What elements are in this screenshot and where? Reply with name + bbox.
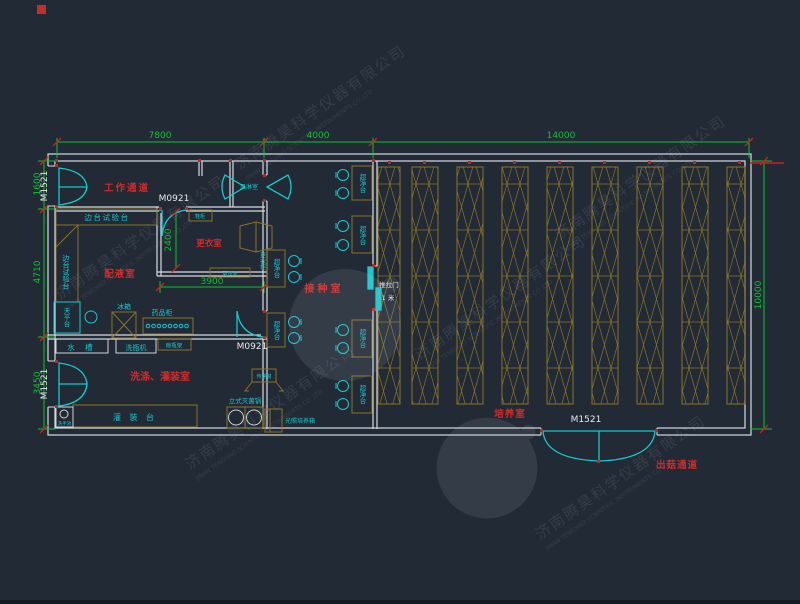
- label-wardrobe: 更衣柜: [259, 252, 266, 271]
- floorplan-drawing: 7800 4000 14000 1600 4710 3450 10000 240…: [0, 0, 800, 600]
- dim-10000: 10000: [754, 280, 764, 309]
- label-side-bench-top: 边台试验台: [85, 212, 130, 222]
- room-label-washing-filling: 洗涤、灌装室: [130, 370, 190, 383]
- door-label-m1521-bottomleft: M1521: [40, 369, 50, 400]
- door-label-m1521-topleft: M1521: [40, 171, 50, 202]
- room-label-changing: 更衣室: [196, 238, 222, 249]
- label-clean-bench: 超净台: [272, 319, 280, 341]
- label-bottle-rack: 晾瓶架: [166, 342, 183, 350]
- room-label-air-shower: 风淋室: [240, 183, 258, 191]
- label-medicine-cabinet: 药品柜: [152, 308, 173, 317]
- door-label-m1521-harvest: M1521: [571, 415, 602, 425]
- dim-14000: 14000: [547, 131, 576, 141]
- label-clean-bench: 超净台: [358, 224, 366, 246]
- label-changing-bench: 更衣凳: [222, 271, 237, 278]
- label-shoe-cabinet: 鞋柜: [195, 213, 205, 220]
- room-label-work-corridor: 工作通道: [104, 182, 150, 194]
- dim-4710: 4710: [33, 260, 43, 283]
- label-sterilizer: 立式灭菌锅: [229, 396, 262, 405]
- label-clean-bench: 超净台: [358, 172, 366, 194]
- corner-red-mark: [37, 5, 46, 14]
- dim-7800: 7800: [149, 131, 172, 141]
- dim-3900: 3900: [201, 277, 224, 287]
- label-bottle-washer: 洗瓶机: [126, 343, 147, 352]
- label-fridge: 冰箱: [117, 302, 131, 311]
- room-label-cultivation: 培养室: [494, 408, 526, 420]
- watermark-logo: [293, 273, 398, 377]
- label-clean-bench: 超净台: [272, 257, 280, 279]
- label-pass-window: 传递窗: [256, 373, 271, 380]
- watermark-logo: [440, 421, 535, 515]
- cad-floorplan-canvas: 7800 4000 14000 1600 4710 3450 10000 240…: [0, 0, 800, 600]
- label-sink: 水 槽: [67, 342, 96, 352]
- label-clean-bench: 超净台: [358, 383, 366, 405]
- door-label-m0921-prep: M0921: [237, 342, 268, 352]
- label-hand-basin: 洗手池: [58, 420, 72, 427]
- label-filling-bench: 灌 装 台: [113, 412, 157, 422]
